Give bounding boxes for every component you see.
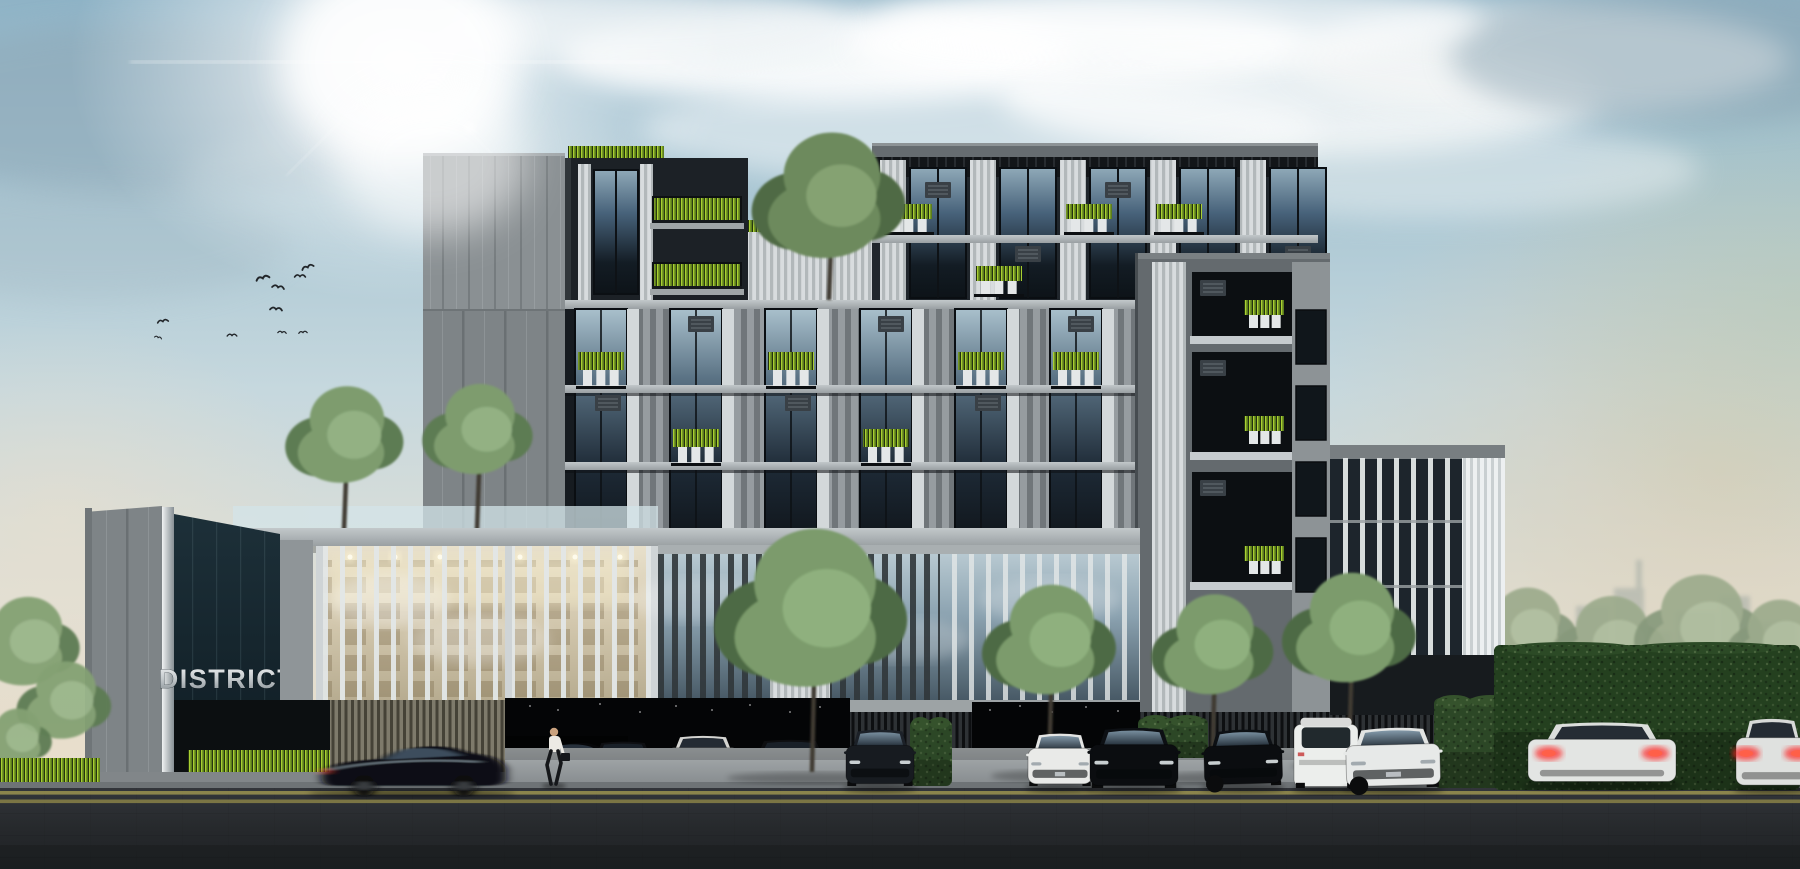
grille [851,769,909,778]
garage-ceiling-light [1085,706,1087,708]
louver-panel [924,309,955,538]
niche-soffit [1190,452,1298,460]
taillight [1648,750,1662,757]
window [1296,462,1326,516]
planter-pot [881,447,890,465]
garage-ceiling-light [639,711,641,713]
car-shadow [308,789,515,799]
headlight [1094,761,1108,765]
planter-pot [904,219,913,234]
planter-pot [786,370,795,388]
tower-niche [1190,472,1298,590]
garage-ceiling-light [529,705,531,707]
planter-pot [691,447,700,465]
side-mirror [912,751,916,754]
balcony-rail [576,386,626,389]
balcony-rail [1051,386,1101,389]
garage-ceiling-light [819,706,821,708]
garage-ceiling-light [989,709,991,711]
planter-pot [963,370,972,388]
road-line-2 [0,800,1800,804]
louver-panel [1019,309,1050,538]
planter-pot [1260,315,1269,330]
louver-panel [829,309,860,538]
planter-grass [958,352,1004,370]
taillight-streak [321,769,331,774]
sign-text-district: DISTRICT [159,664,296,694]
headlight [1208,761,1221,765]
hedge-shade [910,760,952,786]
planter-pot [1174,219,1183,234]
planter-pot [1272,315,1281,330]
green-balcony [650,196,744,229]
planter-grass [578,352,624,370]
balcony-rail [974,294,1024,297]
tower-niche [1190,272,1298,344]
tree-foliage-highlight [1330,601,1391,655]
grille [1096,769,1172,778]
person-shadow [542,783,566,789]
tree-foliage-highlight [327,411,381,459]
planter-pot [678,447,687,465]
balcony-rail [956,386,1006,389]
planter-grass [1156,204,1202,219]
planter-grass [976,266,1022,281]
planter-pot [994,281,1003,296]
glass-balustrade [233,506,658,528]
balcony-rail [671,463,721,466]
planter-pot [1161,219,1170,234]
mid-bay [1050,309,1145,538]
car-body [1090,745,1178,786]
niche-soffit [1190,582,1298,590]
garage-ceiling-light [1019,705,1021,707]
planter-pot [1058,370,1067,388]
wheel-rim [359,781,368,790]
hedge-bush [910,717,952,786]
planter-pot [981,281,990,296]
planter-pot [990,370,999,388]
balcony-rail [1154,232,1204,235]
roof-grass-strip [568,146,664,158]
planter-pot [1249,431,1258,446]
taillight [1739,750,1753,757]
car-body [1028,748,1092,784]
niche-soffit [1190,336,1298,344]
balcony-slab [650,289,744,295]
mid-planter [766,352,816,389]
planter-grass [863,429,909,447]
planter-pot [1188,219,1197,234]
side-mirror [1279,750,1284,753]
tower-niche [1190,352,1298,460]
tree-foliage-highlight [10,619,60,663]
side-mirror [1343,752,1349,755]
planter-grass [768,352,814,370]
headlight [1031,762,1041,765]
trim-line [1299,760,1353,765]
grille [1210,768,1277,778]
headlight [1420,760,1435,764]
mid-bay [955,309,1050,538]
mid-planter [576,352,626,389]
wheel-rim [459,781,468,790]
skyline-building [1636,560,1642,600]
sign-monolith: DISTRICT 48 [85,506,330,782]
planter-pot [895,447,904,465]
architectural-rendering: DISTRICT 48 [0,0,1800,869]
right-tower-niches [1190,272,1298,590]
planter-pot [1008,281,1017,296]
planter-pot [610,370,619,388]
upper-planter [974,266,1024,297]
planter-pot [1098,219,1107,234]
balcony-rail [884,232,934,235]
podium-slab [228,528,1140,546]
tree-foliage-highlight [806,164,876,226]
upper-planter [1154,204,1204,235]
mid-bay [860,309,955,538]
headlight [1160,761,1174,765]
balcony-rail [1242,444,1286,447]
planter-pot [1071,219,1080,234]
briefcase [561,753,570,761]
person-head [550,728,558,736]
side-mirror [1175,751,1180,754]
headlight [1079,762,1089,765]
side-mirror [844,751,848,754]
planter-pot [1260,431,1269,446]
rear-window [1302,727,1351,748]
fin-edge [85,508,92,772]
planter-grass [1244,546,1284,561]
balcony-rail [1242,328,1286,331]
planter-pot [1272,431,1281,446]
louver-panel [734,309,765,538]
planter-pot [1272,561,1281,576]
mid-planter [671,429,721,466]
white-fin [627,309,639,538]
planter-pot [1084,219,1093,234]
balcony-grass [654,198,740,220]
planter-pot [868,447,877,465]
tree-foliage-highlight [50,681,93,719]
balcony-rail [652,286,742,289]
green-balcony [650,262,744,295]
balcony-rail [1064,232,1114,235]
sign-gray-fin [85,506,162,772]
planter-pot [1249,561,1258,576]
balcony-rail [652,220,742,223]
planter-pot [583,370,592,388]
balcony-grass [654,264,740,286]
bumper [1540,770,1664,776]
street-vignette [0,845,1800,869]
planter-grass [1066,204,1112,219]
tree-foliage-highlight [462,407,512,452]
planter-grass [1053,352,1099,370]
roof-grass [568,146,664,158]
mid-band [565,300,1145,540]
mid-planter [1051,352,1101,389]
window [1296,310,1326,364]
tree-foliage-highlight [1030,613,1091,667]
headlight [900,760,911,763]
tree-foliage-highlight [1195,620,1251,670]
lobby-glass [316,546,658,712]
garage-ceiling-light [789,711,791,713]
planter-pot [705,447,714,465]
white-fin [817,309,829,538]
garage-ceiling-light [599,703,601,705]
planter-pot [596,370,605,388]
balcony-rail [1242,574,1286,577]
planter-pot [1071,370,1080,388]
car-shadow [1522,781,1682,791]
tree-foliage-highlight [6,723,38,752]
license-plate [1055,772,1065,776]
planter-pot [1260,561,1269,576]
planter-pot [773,370,782,388]
scene-canvas: DISTRICT 48 [0,0,1800,869]
side-mirror [1026,754,1030,757]
mid-planter [861,429,911,466]
side-mirror [1437,749,1443,752]
planter-pot [1249,315,1258,330]
taillight [1542,750,1556,757]
headlight [1266,760,1279,764]
planter-grass [673,429,719,447]
white-fin [1102,309,1114,538]
planter-pot [800,370,809,388]
side-mirror [1202,752,1207,755]
balcony-slab [650,223,744,229]
garage-ceiling-light [557,709,559,711]
window [1296,386,1326,440]
mid-bay [575,309,670,538]
white-fin [722,309,734,538]
mid-planter [956,352,1006,389]
bumper [1742,772,1800,779]
white-fin [912,309,924,538]
planter-pot [918,219,927,234]
upper-planter [1064,204,1114,235]
mid-bay [765,309,860,538]
planter-pot [1085,370,1094,388]
sign-silver-edge [162,507,174,772]
planter-grass [1244,416,1284,431]
garage-ceiling-light [675,705,677,707]
mid-bay [670,309,765,538]
garage-ceiling-light [711,709,713,711]
planter-grass [1244,300,1284,315]
side-mirror [1087,751,1092,754]
planter-pot [976,370,985,388]
suv-roof [1300,718,1351,727]
taillight [1298,752,1304,756]
tree-foliage-highlight [783,569,871,647]
mid-window-bays [575,309,1145,538]
headlight [1351,761,1366,765]
white-fin [1007,309,1019,538]
license-plate [1386,772,1401,777]
tire [1296,783,1305,788]
garage-ceiling-light [749,704,751,706]
headlight [849,760,860,763]
garage-ceiling-light [1117,710,1119,712]
balcony-rail [861,463,911,466]
window [1296,538,1326,592]
foreground-grass [0,758,100,782]
louver-panel [639,309,670,538]
car-body [846,745,914,783]
balcony-rail [766,386,816,389]
